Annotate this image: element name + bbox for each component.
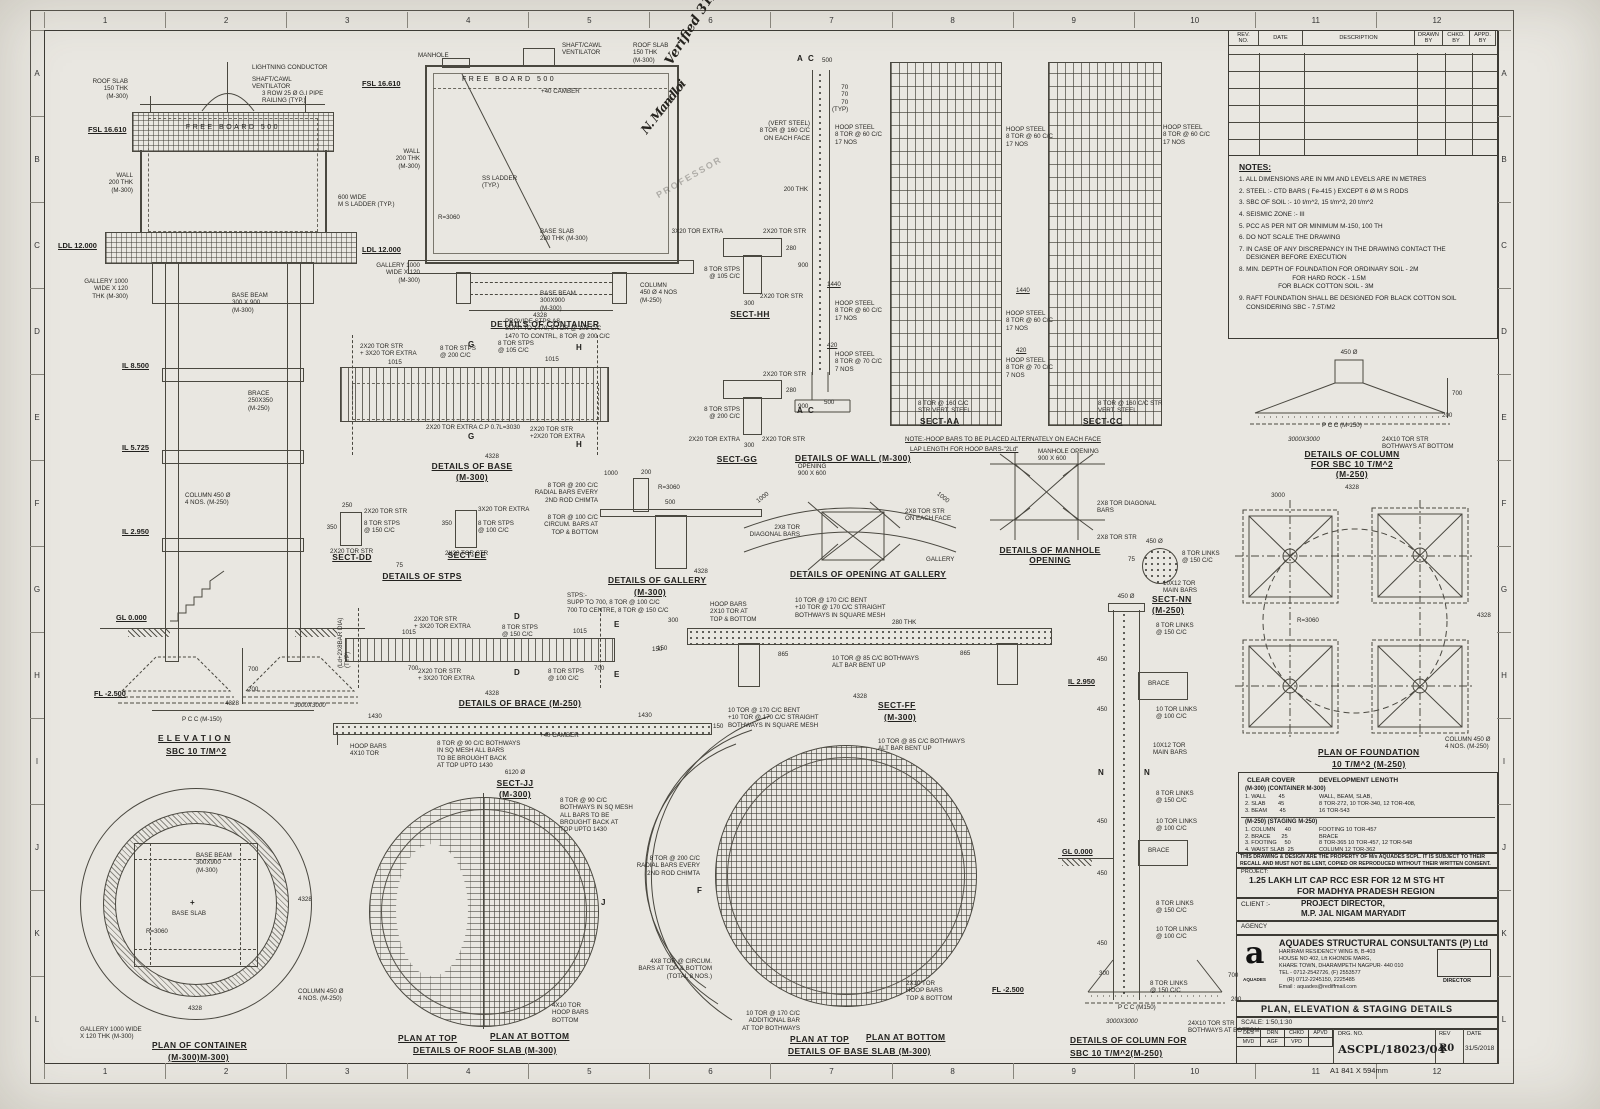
section-mark: H	[576, 440, 582, 449]
column-stub	[456, 272, 471, 304]
dim: 350	[442, 520, 452, 527]
callout: HOOP STEEL 8 TOR @ 60 C/C 17 NOS	[1163, 124, 1210, 146]
base-beam-inner-dashed	[352, 383, 599, 420]
note-line: NOTE:-HOOP BARS TO BE PLACED ALTERNATELY…	[905, 436, 1101, 443]
callout: HOOP STEEL 8 TOR @ 60 C/C 17 NOS	[835, 300, 882, 322]
end-column-line	[358, 608, 359, 688]
dim: 150	[713, 723, 723, 730]
callout: 2X20 TOR STR	[364, 508, 407, 515]
wall-section-strip	[812, 70, 830, 375]
detail-title: PLAN AT BOTTOM	[866, 1033, 945, 1043]
callout: BASE BEAM 300X900 (M-300)	[196, 852, 232, 874]
firm-phone: TEL - 0712-2542726, (F) 2553577	[1279, 970, 1361, 976]
table-column-line	[1304, 53, 1305, 156]
center-mark: +	[190, 898, 195, 907]
callout: 600 WIDE M S LADDER (TYP.)	[338, 194, 395, 209]
section-mark: N	[1144, 768, 1150, 777]
detail-title: DETAILS OF BASE SLAB (M-300)	[788, 1047, 931, 1057]
callout: 10 TOR @ 85 C/C BOTHWAYS ALT BAR BENT UP	[832, 655, 919, 670]
callout: 2X20 TOR STR	[763, 228, 806, 235]
ladder-line-drawing	[440, 70, 655, 252]
level-label: IL 2.950	[122, 528, 149, 537]
callout: 8 TOR STPS @ 105 C/C	[498, 340, 534, 355]
dim: 200	[1442, 412, 1452, 419]
callout: 2X20 TOR EXTRA	[689, 436, 740, 443]
freeboard-dashed-outline	[148, 118, 318, 232]
dim: 450	[1097, 706, 1107, 713]
section-mark: A	[797, 54, 803, 63]
dim: 6120 Ø	[505, 769, 525, 776]
callout: P C C (M-150)	[1322, 422, 1362, 429]
note-item: 5. PCC AS PER NIT OR MINIMUM M-150, 100 …	[1239, 223, 1493, 232]
dim: 700	[594, 665, 604, 672]
detail-title: PLAN OF FOUNDATION	[1318, 748, 1420, 758]
sign-value-cell: VPD	[1285, 1038, 1309, 1047]
dim: 500	[665, 499, 675, 506]
callout: P C C (M-150)	[182, 716, 222, 723]
callout: 2X20 TOR STR	[762, 436, 805, 443]
level-label: GL 0.000	[1062, 848, 1093, 857]
gallery-band	[105, 232, 357, 264]
column-stub	[612, 272, 627, 304]
detail-subtitle: 10 T/M^2 (M-250)	[1332, 760, 1406, 770]
client-line: M.P. JAL NIGAM MARYADIT	[1301, 909, 1406, 918]
callout: COLUMN 450 Ø 4 NOS. (M-250)	[1445, 736, 1490, 751]
beam-stub	[997, 643, 1018, 685]
callout: OPENING 900 X 600	[798, 463, 827, 478]
project-line: 1.25 LAKH LIT CAP RCC ESR FOR 12 M STG H…	[1249, 875, 1445, 885]
detail-title: DETAILS OF OPENING AT GALLERY	[790, 570, 946, 580]
dim: 3000X3000	[1288, 436, 1320, 443]
detail-title: DETAILS OF COLUMN FOR SBC 10 T/M^2 (M-25…	[1304, 450, 1399, 480]
dim: 1440	[1016, 287, 1030, 294]
dim: 4328	[225, 700, 239, 707]
dim: 420	[1016, 347, 1026, 354]
dim: 900	[798, 262, 808, 269]
callout: BASE SLAB 280 THK (M-300)	[540, 228, 588, 243]
callout: 8 TOR STPS @ 105 C/C	[704, 266, 740, 281]
callout: 8 TOR @ 200 C/C RADIAL BARS EVERY 2ND RO…	[637, 855, 700, 877]
table-section-title: (M-250) (STAGING M-250)	[1245, 819, 1317, 825]
dim: 300	[744, 442, 754, 449]
sign-value-cell: MVD	[1237, 1038, 1261, 1047]
detail-title: SECT-GG	[717, 455, 758, 465]
foundation-plan-drawing	[1230, 495, 1505, 755]
dim: 300	[1099, 970, 1109, 977]
callout: 2X8 TOR DIAGONAL BARS	[750, 524, 800, 539]
dim: 1000	[604, 470, 618, 477]
callout: HOOP STEEL 8 TOR @ 70 C/C 7 NOS	[1006, 357, 1053, 379]
detail-title: PLAN AT TOP	[398, 1034, 457, 1044]
dim: 700	[408, 665, 418, 672]
callout: 2X10 TOR HOOP BARS TOP & BOTTOM	[906, 980, 952, 1002]
callout: 8 TOR @ 90 C/C BOTHWAYS IN SQ MESH ALL B…	[560, 797, 633, 834]
dim: 75	[1128, 556, 1135, 563]
callout: 8 TOR LINKS @ 150 C/C	[1156, 622, 1194, 637]
callout: 10 TOR @ 170 C/C BENT +10 TOR @ 170 C/C …	[795, 597, 885, 619]
callout: GALLERY	[926, 556, 954, 563]
callout: R=3060	[658, 484, 680, 491]
brace-bar	[162, 368, 304, 382]
detail-title: DETAILS OF ROOF SLAB (M-300)	[413, 1046, 557, 1056]
callout: 2X20 TOR STR +2X20 TOR EXTRA	[530, 426, 585, 441]
detail-subtitle: (M-300)M-300)	[168, 1053, 229, 1063]
revision-empty-rows	[1229, 53, 1497, 156]
callout: 10 TOR LINKS @ 100 C/C	[1156, 926, 1197, 941]
callout: 2X20 TOR STR + 3X20 TOR EXTRA	[414, 616, 471, 631]
callout: 2X20 TOR STR	[760, 293, 803, 300]
detail-title: E L E V A T I O N	[158, 734, 231, 744]
callout: 4X10 TOR HOOP BARS BOTTOM	[552, 1002, 589, 1024]
detail-title: DETAILS OF GALLERY	[608, 576, 706, 586]
dim: 75	[396, 562, 403, 569]
firm-phone: (R) 0712-2245150, 2225485	[1287, 977, 1355, 983]
dim: 4328	[485, 453, 499, 460]
property-note: THIS DRAWING & DESIGN ARE THE PROPERTY O…	[1240, 854, 1494, 867]
dim: 500	[824, 399, 834, 406]
callout: 10X12 TOR MAIN BARS	[1153, 742, 1187, 757]
firm-box: a AQUADES AQUADES STRUCTURAL CONSULTANTS…	[1236, 934, 1498, 1002]
base-beam-centerline	[150, 843, 151, 965]
drg-row-box: DESDRNCHKDAPVD MVDAGFVPD DRG. NO. ASCPL/…	[1236, 1028, 1498, 1064]
level-label: GL 0.000	[116, 614, 147, 623]
dim: 70 70 70 (TYP)	[832, 84, 848, 113]
callout: 8 TOR STPS @ 150 C/C	[502, 624, 538, 639]
callout: 8 TOR STPS @ 200 C/C	[704, 406, 740, 421]
manhole-stub	[442, 58, 470, 68]
dim: 280	[786, 387, 796, 394]
dim: 200	[248, 686, 258, 693]
callout: 3X20 TOR EXTRA	[478, 506, 529, 513]
drg-no-label: DRG. NO.	[1338, 1031, 1363, 1037]
client-label: CLIENT :-	[1241, 901, 1270, 908]
detail-title: SECT-DD	[332, 553, 372, 563]
callout: 200 THK	[784, 186, 808, 193]
detail-title: SECT-HH	[730, 310, 770, 320]
table-header: CLEAR COVER	[1247, 777, 1295, 784]
dim: 700	[248, 666, 258, 673]
note-item: 7. IN CASE OF ANY DISCREPANCY IN THE DRA…	[1239, 246, 1493, 263]
dim: 4328	[298, 896, 312, 903]
section-mark: J	[601, 898, 605, 907]
note-line: LAP LENGTH FOR HOOP BARS-"2Ld"	[910, 446, 1018, 453]
rev-label: REV	[1439, 1031, 1451, 1037]
section-mark: D	[514, 668, 520, 677]
callout: (VERT STEEL) 8 TOR @ 160 C/C ON EACH FAC…	[760, 120, 810, 142]
brace-beam-elevation	[345, 638, 615, 662]
callout: BRACE	[1148, 680, 1169, 687]
table-column-line	[1472, 53, 1473, 156]
beam-stub	[738, 643, 760, 687]
callout: 3 ROW 25 Ø G.I PIPE RAILING (TYP.)	[262, 90, 323, 105]
note: STPS:- SUPP TO 700, 8 TOR @ 100 C/C 700 …	[567, 592, 668, 614]
firm-address: KHARE TOWN, DHARAMPETH NAGPUR- 440 010	[1279, 963, 1403, 969]
callout: HOOP STEEL 8 TOR @ 70 C/C 7 NOS	[835, 351, 882, 373]
detail-title: SECT-CC	[1083, 417, 1123, 427]
dim: 250	[342, 502, 352, 509]
section-mark: G	[468, 432, 474, 441]
detail-title: DETAILS OF BASE	[432, 462, 513, 472]
stair-drawing	[168, 565, 232, 625]
detail-title: SECT-JJ	[497, 779, 534, 789]
callout: MANHOLE	[418, 52, 449, 59]
revision-table: REV. NO.DATEDESCRIPTIONDRAWN BYCHKD. BYA…	[1228, 30, 1498, 157]
callout: 10 TOR @ 170 C/C ADDITIONAL BAR AT TOP B…	[742, 1010, 800, 1032]
wall-mesh-grid	[1048, 62, 1162, 426]
freeboard-label: FREE BOARD 500	[186, 124, 280, 132]
ground-line	[1058, 858, 1114, 859]
beam-below	[655, 515, 687, 569]
detail-subtitle: (M-300)	[499, 790, 531, 800]
rev-value: R0	[1439, 1043, 1454, 1054]
table-column-line	[1333, 1029, 1334, 1063]
sign-header-cell: APVD	[1309, 1029, 1333, 1038]
callout: 2X20 TOR STR + 3X20 TOR EXTRA	[360, 343, 417, 358]
callout: 2X8 TOR STR	[1097, 534, 1137, 541]
note-item: 6. DO NOT SCALE THE DRAWING	[1239, 234, 1493, 243]
revision-header-cell: REV. NO.	[1229, 31, 1259, 46]
dim: 3000X3000	[294, 702, 326, 709]
dim: 4328	[1477, 612, 1491, 619]
aquades-logo: a	[1245, 939, 1264, 969]
callout: 8 TOR STPS @ 100 C/C	[548, 668, 584, 683]
callout: 3X20 TOR EXTRA	[672, 228, 723, 235]
level-label: FL -2.500	[992, 986, 1024, 995]
web-section	[743, 255, 762, 294]
table-column-line	[1463, 1029, 1464, 1063]
section-mark: E	[614, 620, 619, 629]
dim: 700	[1228, 972, 1238, 979]
dim: 450 Ø	[1118, 593, 1135, 600]
paper-size-note: A1 841 X 594mm	[1330, 1067, 1388, 1076]
section-mark: H	[576, 343, 582, 352]
sheet-title: PLAN, ELEVATION & STAGING DETAILS	[1261, 1004, 1453, 1014]
firm-email: Email : aquades@rediffmail.com	[1279, 984, 1357, 990]
date-label: DATE	[1467, 1031, 1482, 1037]
dim: 1015	[573, 628, 587, 635]
note-item: 8. MIN. DEPTH OF FOUNDATION FOR ORDINARY…	[1239, 266, 1493, 292]
table-column-line	[1445, 53, 1446, 156]
table-rows: 1. WALL 45 2. SLAB 45 3. BEAM 45	[1245, 794, 1286, 815]
wall-stub	[633, 478, 649, 512]
callout: 8 TOR @ 200 C/C RADIAL BARS EVERY 2ND RO…	[535, 482, 598, 504]
callout: GALLERY 1000 WIDE X 120 (M-300)	[376, 262, 420, 284]
level-label: IL 5.725	[122, 444, 149, 453]
callout: 2X20 TOR STR + 3X20 TOR EXTRA	[418, 668, 475, 683]
project-line: FOR MADHYA PRADESH REGION	[1297, 886, 1435, 896]
dim: 865	[778, 651, 788, 658]
table-rows: 1. COLUMN 40 2. BRACE 25 3. FOOTING 50 4…	[1245, 827, 1294, 854]
dim-line	[152, 710, 314, 711]
dim: 200	[641, 469, 651, 476]
ground-line	[100, 628, 365, 629]
callout: P C C (M150)	[1118, 1004, 1156, 1011]
callout: 8 TOR @ 160 C/C STR VERT. STEEL	[918, 400, 971, 415]
detail-title: PLAN AT BOTTOM	[490, 1032, 569, 1042]
drg-no-value: ASCPL/18023/04	[1338, 1042, 1446, 1056]
section-mark: E	[614, 670, 619, 679]
stirrup-section	[340, 512, 362, 546]
section-mark: N	[1098, 768, 1104, 777]
callout: 10 TOR @ 85 C/C BOTHWAYS ALT BAR BENT UP	[878, 738, 965, 753]
dim: 450	[1097, 870, 1107, 877]
dim: 450 Ø	[1146, 538, 1163, 545]
callout: BASE BEAM 300 X 900 (M-300)	[232, 292, 268, 314]
callout: SHAFT/CAWL VENTILATOR	[252, 76, 292, 91]
callout: 24X10 TOR STR BOTHWAYS AT BOTTOM	[1188, 1020, 1260, 1035]
dim: 450	[1097, 818, 1107, 825]
revision-header-cell: DRAWN BY	[1415, 31, 1443, 46]
section-mark: D	[514, 612, 520, 621]
dim: 150	[657, 645, 667, 652]
ventilator-stub	[523, 48, 555, 67]
level-label: LDL 12.000	[362, 246, 401, 255]
dim: 4328	[853, 693, 867, 700]
dim: 350	[327, 524, 337, 531]
dim: 700	[1452, 390, 1462, 397]
dim: 450	[1097, 940, 1107, 947]
detail-title: PLAN AT TOP	[790, 1035, 849, 1045]
railing-post	[150, 96, 151, 112]
dim: 1015	[388, 359, 402, 366]
dim: 200	[1231, 996, 1241, 1003]
staging-column	[1113, 610, 1140, 1000]
stirrup-section	[455, 510, 477, 548]
detail-title: DETAILS OF COLUMN FOR	[1070, 1036, 1187, 1046]
agency-label: AGENCY	[1241, 923, 1267, 930]
callout: R=3060	[146, 928, 168, 935]
dim-line	[242, 648, 243, 704]
note-item: 3. SBC OF SOIL :- 10 t/m^2, 15 t/m^2, 20…	[1239, 199, 1493, 208]
note-item: 1. ALL DIMENSIONS ARE IN MM AND LEVELS A…	[1239, 176, 1493, 185]
ventilator-dome-drawing	[200, 84, 256, 112]
dim: 420	[827, 342, 837, 349]
callout: PROVIDE STPS AS- SUPP TO 1470, 8 TOR @ 1…	[505, 318, 610, 340]
revision-header-cell: CHKD. BY	[1443, 31, 1470, 46]
revision-header-cell: DESCRIPTION	[1303, 31, 1415, 46]
callout: BASE SLAB	[172, 910, 206, 917]
dim: 4328	[485, 690, 499, 697]
callout: HOOP STEEL 8 TOR @ 60 C/C 17 NOS	[1006, 310, 1053, 332]
callout: COLUMN 450 Ø 4 NOS (M-250)	[640, 282, 677, 304]
table-divider	[1241, 817, 1495, 818]
detail-title: SECT-AA	[920, 417, 960, 427]
callout: COLUMN 450 Ø 4 NOS. (M-250)	[185, 492, 230, 507]
center-line	[483, 793, 484, 1029]
callout: 8 TOR LINKS @ 150 C/C	[1182, 550, 1220, 565]
callout: 8 TOR LINKS @ 150 C/C	[1156, 900, 1194, 915]
dim: 865	[960, 650, 970, 657]
callout: 10 TOR LINKS @ 100 C/C	[1156, 818, 1197, 833]
base-beam-dashline	[470, 282, 612, 283]
callout: 10X12 TOR MAIN BARS	[1163, 580, 1197, 595]
firm-address: HOUSE NO 402, Lft KHONDE MARG,	[1279, 956, 1371, 962]
callout: GALLERY 1000 WIDE X 120 THK (M-300)	[80, 1026, 142, 1041]
web-section	[743, 397, 762, 435]
callout: BASE BEAM 300X900 (M-300)	[540, 290, 576, 312]
level-label: LDL 12.000	[58, 242, 97, 251]
project-box: PROJECT: 1.25 LAKH LIT CAP RCC ESR FOR 1…	[1236, 867, 1498, 899]
revision-table-header: REV. NO.DATEDESCRIPTIONDRAWN BYCHKD. BYA…	[1229, 31, 1497, 46]
callout: ROOF SLAB 150 THK (M-300)	[93, 78, 128, 100]
end-column-line	[600, 608, 601, 688]
callout: LIGHTNING CONDUCTOR	[252, 64, 328, 71]
dim: 1430	[368, 713, 382, 720]
base-beam-centerline	[240, 843, 241, 965]
callout: 8 TOR LINKS @ 150 C/C	[1150, 980, 1188, 995]
hoop-ring	[381, 809, 587, 1015]
detail-title: DETAILS OF BRACE (M-250)	[459, 699, 582, 709]
dim: 1440	[827, 281, 841, 288]
hoop-ring	[727, 757, 965, 995]
detail-subtitle: SBC 10 T/M^2	[166, 747, 226, 757]
detail-title: PLAN OF CONTAINER	[152, 1041, 247, 1051]
callout: SS LADDER (TYP.)	[482, 175, 517, 190]
wall-mesh-grid	[890, 62, 1002, 426]
table-section-title: (M-300) (CONTAINER M-300)	[1245, 786, 1326, 792]
dim: 1015	[402, 629, 416, 636]
callout: 10 TOR @ 170 C/C BENT +10 TOR @ 170 C/C …	[728, 707, 818, 729]
table-header: DEVELOPMENT LENGTH	[1319, 777, 1398, 784]
callout: R=3060	[438, 214, 460, 221]
level-label: IL 8.500	[122, 362, 149, 371]
detail-title: SECT-NN	[1152, 595, 1192, 605]
column-section-circle	[1142, 548, 1178, 584]
brace-bar	[162, 538, 304, 552]
end-column-line	[597, 335, 598, 455]
dim: 3000X3000	[1106, 1018, 1138, 1025]
dim: 1430	[638, 712, 652, 719]
dim: 280	[786, 245, 796, 252]
callout: 2X20 TOR EXTRA C.P 0.7L=3030	[426, 424, 520, 431]
detail-title: SECT-FF	[878, 701, 916, 711]
note-item: 2. STEEL :- CTD BARS ( Fe-415 ) EXCEPT 6…	[1239, 188, 1493, 197]
detail-subtitle: (M-250)	[1152, 606, 1184, 616]
note-item: 4. SEISMIC ZONE :- III	[1239, 211, 1493, 220]
sign-value-cell	[1309, 1038, 1333, 1047]
revision-header-cell: DATE	[1259, 31, 1303, 46]
level-label: FSL 16.610	[362, 80, 400, 89]
dim: 450	[1097, 656, 1107, 663]
callout: R=3060	[1297, 617, 1319, 624]
callout: BRACE 250X350 (M-250)	[248, 390, 273, 412]
client-line: PROJECT DIRECTOR,	[1301, 899, 1385, 908]
detail-subtitle: (M-300)	[456, 473, 488, 483]
sign-header-cell: CHKD	[1285, 1029, 1309, 1038]
callout: WALL 200 THK (M-300)	[109, 172, 133, 194]
table-column-line	[1259, 53, 1260, 156]
callout: HOOP STEEL 8 TOR @ 60 C/C 17 NOS	[835, 124, 882, 146]
detail-title: DETAILS OF STPS	[382, 572, 461, 582]
director-label: DIRECTOR	[1443, 978, 1471, 984]
table-column-line	[1417, 53, 1418, 156]
drawing-sheet: 123456789101112 123456789101112 ABCDEFGH…	[0, 0, 1600, 1109]
level-label: FL -2.500	[94, 690, 126, 699]
callout: BRACE	[1148, 847, 1169, 854]
director-sign-box	[1437, 949, 1491, 977]
callout: 2X20 TOR STR	[763, 371, 806, 378]
dim: 1015	[545, 356, 559, 363]
end-column-line	[352, 335, 353, 455]
section-mark: C	[808, 406, 814, 415]
client-box: CLIENT :- PROJECT DIRECTOR, M.P. JAL NIG…	[1236, 897, 1498, 922]
callout: 2X8 TOR STR ON EACH FACE	[905, 508, 951, 523]
edge-hook	[337, 733, 338, 745]
dim: 280 THK	[892, 619, 916, 626]
callout: 2X8 TOR DIAGONAL BARS	[1097, 500, 1156, 515]
section-mark: C	[808, 54, 814, 63]
gallery-band	[408, 260, 694, 274]
